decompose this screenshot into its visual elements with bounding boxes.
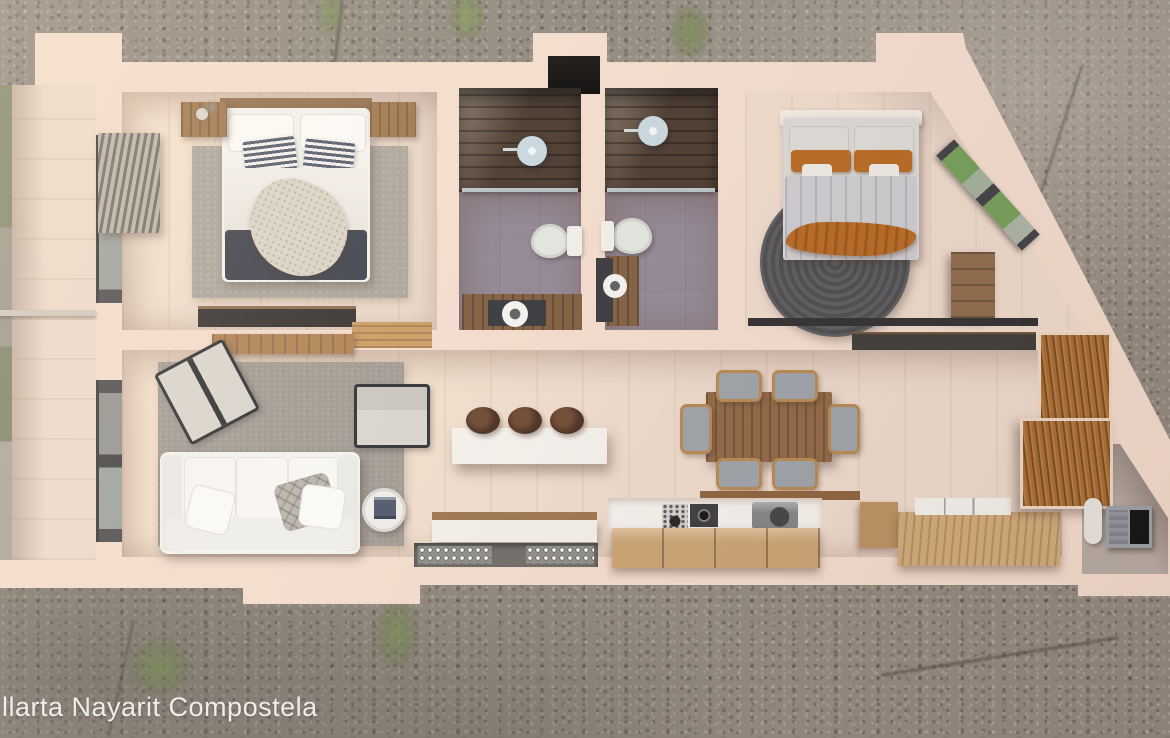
- white-sofa: [160, 452, 360, 554]
- kitchen-l-counter: [898, 512, 1060, 566]
- nightstand-right: [370, 102, 416, 137]
- accent-chair-right: [354, 384, 430, 448]
- dining-chair: [716, 370, 762, 402]
- pantry-cabinet-lower: [1020, 418, 1113, 509]
- dining-chair: [772, 370, 818, 402]
- bathroom1-toilet-tank: [567, 226, 582, 256]
- watermark-text: llarta Nayarit Compostela: [2, 692, 318, 723]
- bathroom2-toilet-tank: [601, 221, 614, 251]
- media-console: [432, 520, 597, 542]
- bedroom2-bed: [780, 110, 922, 262]
- bathroom2-shower-glass: [607, 188, 715, 192]
- pantry-cabinet-upper: [1038, 332, 1112, 422]
- cube-shelf-slats: [1109, 510, 1128, 544]
- weed-plant: [374, 596, 420, 670]
- bedroom1-bed: [220, 98, 372, 284]
- balcony-floor: [12, 85, 96, 560]
- living-room-wall-console: [212, 334, 354, 354]
- dining-chair: [828, 404, 860, 454]
- bathroom1-shower-glass: [462, 188, 578, 192]
- bathroom1-shower-head: [517, 136, 547, 166]
- gas-burner: [690, 504, 718, 527]
- book-stack: [374, 500, 396, 516]
- kitchen-base-cabinets: [612, 528, 820, 568]
- bathroom2-shower-head: [638, 116, 668, 146]
- cube-shelf-opening: [1130, 510, 1149, 544]
- bedroom2-closet-track: [748, 318, 1038, 326]
- bedroom1-media-console: [198, 306, 356, 327]
- dark-wall-counter: [852, 332, 1036, 350]
- bedroom1-window-blinds: [98, 133, 160, 233]
- water-heater: [1084, 498, 1102, 544]
- dining-chair: [680, 404, 712, 454]
- glassware-tray: [418, 546, 492, 564]
- bathroom2-toilet: [612, 218, 652, 254]
- bedroom2-dresser: [951, 252, 995, 318]
- bedroom1-door-threshold: [352, 322, 432, 348]
- balcony-glass-railing: [0, 85, 12, 560]
- glassware-tray: [526, 546, 594, 564]
- kitchen-l-countertop: [915, 498, 1011, 515]
- bar-stool: [550, 407, 584, 434]
- bar-stool: [466, 407, 500, 434]
- bar-stool: [508, 407, 542, 434]
- dining-table: [706, 392, 832, 462]
- kitchen-corner-cabinet: [860, 502, 898, 548]
- balcony-railing-bar: [0, 310, 96, 316]
- cube-shelf: [1106, 506, 1152, 548]
- dining-chair: [772, 458, 818, 490]
- bathroom2-round-sink: [603, 274, 627, 298]
- bar-glassware-unit: [414, 543, 598, 567]
- dining-chair: [716, 458, 762, 490]
- bathroom1-toilet: [531, 224, 569, 258]
- floorplan-render-scene: llarta Nayarit Compostela: [0, 0, 1170, 738]
- cooktop-knob-module: [662, 504, 688, 528]
- kitchen-sink: [752, 502, 798, 529]
- weed-plant: [128, 636, 192, 698]
- sofa-pillow: [297, 483, 346, 531]
- orange-throw-blanket: [786, 222, 916, 256]
- bathroom1-round-sink: [502, 301, 528, 327]
- dried-plant-sprig: [203, 99, 219, 115]
- weed-plant: [668, 4, 712, 60]
